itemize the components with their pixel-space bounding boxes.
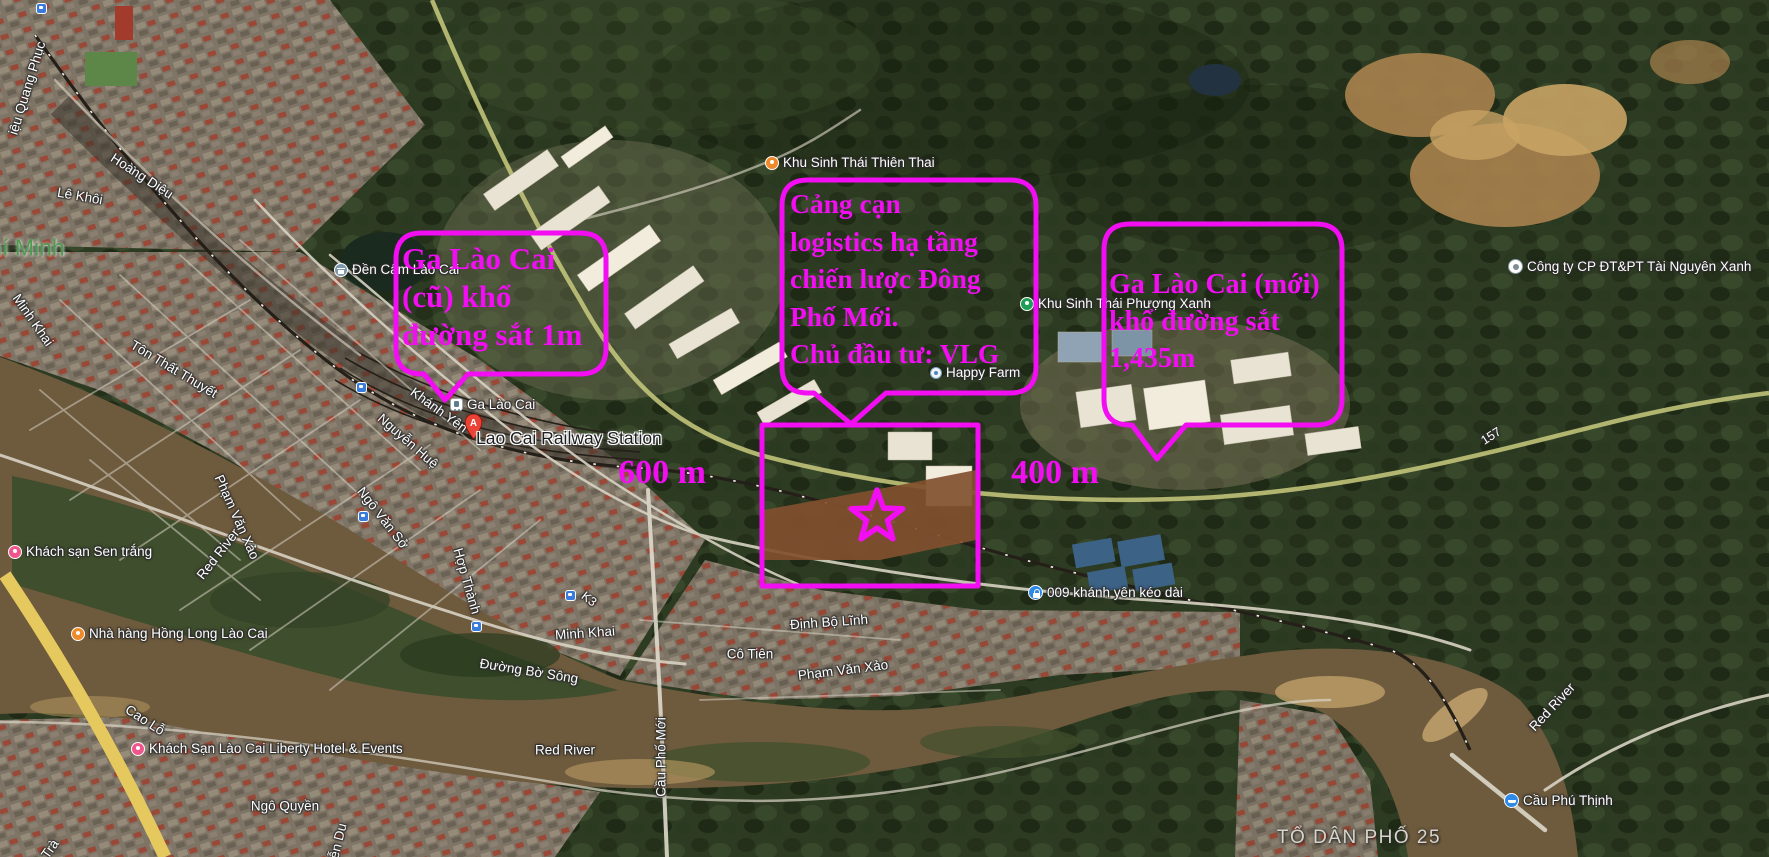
poi-cong-ty-tai-nguyen-xanh[interactable]: Công ty CP ĐT&PT Tài Nguyên Xanh: [1508, 259, 1751, 274]
park-icon: [1020, 297, 1034, 311]
street-label-ngo-quyen: Ngô Quyền: [251, 799, 319, 814]
street-label-co-tien: Cô Tiên: [727, 647, 774, 662]
callout-line: Ga Lào Cai (mới): [1109, 266, 1320, 303]
callout-line: Phố Mới.: [790, 298, 999, 336]
satellite-imagery: [0, 0, 1769, 857]
callout-line: Ga Lào Cai: [402, 240, 582, 278]
hotel-icon: [131, 742, 145, 756]
poi-label: Ga Lào Cai: [467, 397, 535, 412]
street-label-cau-pho-moi: Cầu Phố Mới: [654, 717, 669, 796]
temple-icon: [334, 263, 348, 277]
transit-stop-icon[interactable]: [356, 382, 367, 393]
transit-stop-icon[interactable]: [471, 621, 482, 632]
transit-stop-icon[interactable]: [36, 3, 47, 14]
transit-stop-icon[interactable]: [358, 511, 369, 522]
poi-label: Khu Sinh Thái Thiên Thai: [783, 155, 935, 170]
callout-line: chiến lược Đông: [790, 260, 999, 298]
satellite-map[interactable]: iệu Quang Phục Hoàng Diệu Lê Khôi Minh K…: [0, 0, 1769, 857]
poi-liberty-hotel[interactable]: Khách Sạn Lào Cai Liberty Hotel & Events: [131, 741, 403, 756]
area-label-to-dan-pho-25: TỔ DÂN PHỐ 25: [1277, 827, 1441, 849]
poi-label: 009 khánh yên kéo dài: [1047, 585, 1183, 600]
callout-text-new-station: Ga Lào Cai (mới) khổ đường sắt 1,435m: [1109, 266, 1320, 377]
distance-label-600m: 600 m: [618, 454, 706, 492]
poi-label: Khách Sạn Lào Cai Liberty Hotel & Events: [149, 741, 403, 756]
poi-nha-hang-hong-long[interactable]: Nhà hàng Hồng Long Lào Cai: [71, 626, 268, 641]
poi-label: Nhà hàng Hồng Long Lào Cai: [89, 626, 268, 641]
callout-line: Chủ đầu tư: VLG: [790, 335, 999, 373]
poi-cau-phu-thinh[interactable]: Cầu Phú Thịnh: [1504, 793, 1613, 808]
callout-line: Cảng cạn: [790, 185, 999, 223]
callout-line: (cũ) khổ: [402, 278, 582, 316]
bridge-icon: [1504, 793, 1519, 808]
hotel-icon: [8, 545, 22, 559]
poi-label: Công ty CP ĐT&PT Tài Nguyên Xanh: [1527, 259, 1751, 274]
callout-line: logistics hạ tầng: [790, 223, 999, 261]
callout-text-old-station: Ga Lào Cai (cũ) khổ đường sắt 1m: [402, 240, 582, 354]
poi-khach-san-sen-trang[interactable]: Khách sạn Sen trắng: [8, 544, 152, 559]
company-icon: [1508, 259, 1523, 274]
lock-icon: [1028, 585, 1043, 600]
callout-line: 1,435m: [1109, 340, 1320, 377]
callout-line: đường sắt 1m: [402, 316, 582, 354]
water-label-red-river-center: Red River: [535, 743, 595, 758]
poi-ga-lao-cai[interactable]: Ga Lào Cai: [450, 397, 535, 412]
area-label-ho-chi-minh: hí Minh: [0, 235, 65, 262]
poi-lao-cai-railway-station[interactable]: Lao Cai Railway Station: [476, 428, 662, 449]
transit-stop-icon[interactable]: [565, 590, 576, 601]
poi-009-khanh-yen-keo-dai[interactable]: 009 khánh yên kéo dài: [1028, 585, 1183, 600]
poi-label: Khách sạn Sen trắng: [26, 544, 152, 559]
restaurant-icon: [71, 627, 85, 641]
train-station-icon: [450, 398, 463, 411]
callout-text-dry-port: Cảng cạn logistics hạ tầng chiến lược Đô…: [790, 185, 999, 373]
poi-label: Cầu Phú Thịnh: [1523, 793, 1613, 808]
callout-line: khổ đường sắt: [1109, 303, 1320, 340]
distance-label-400m: 400 m: [1011, 454, 1099, 492]
poi-khu-sinh-thai-thien-thai[interactable]: Khu Sinh Thái Thiên Thai: [765, 155, 935, 170]
attraction-icon: [765, 156, 779, 170]
